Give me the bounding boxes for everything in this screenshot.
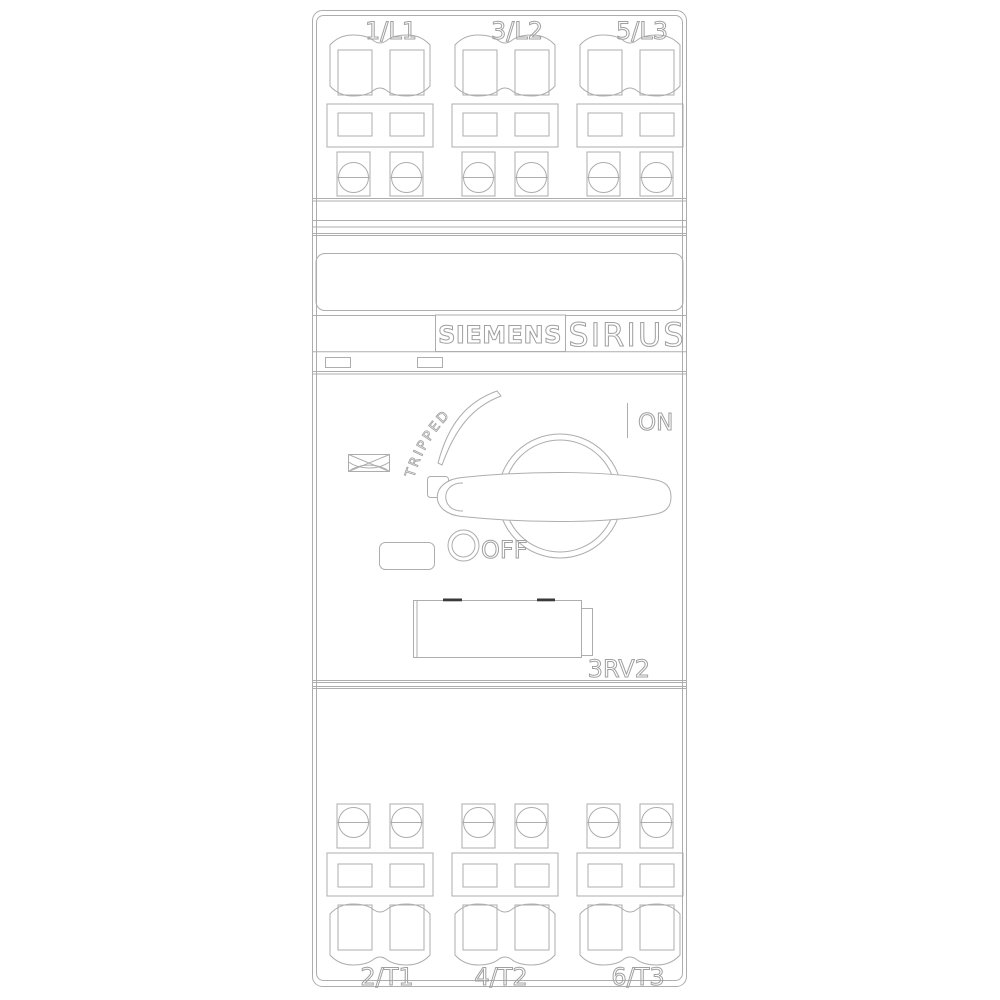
label-plate-mark-right (537, 599, 555, 602)
label-plate-mark-left (443, 599, 462, 602)
terminal-label-1L1: 1/L1 (365, 17, 417, 45)
product-illustration: 1/L1 3/L2 5/L3 SIEMENS SIRIUS TRIPPED ON (0, 0, 1000, 1000)
off-label: OFF (481, 536, 528, 564)
terminal-block-bottom-1 (327, 804, 433, 965)
test-button (380, 543, 435, 570)
terminal-block-top-1 (327, 35, 433, 196)
sirius-logo: SIRIUS (568, 316, 685, 354)
terminal-block-bottom-3 (577, 804, 683, 965)
terminal-block-top-3 (577, 35, 683, 196)
rotary-handle (437, 472, 671, 521)
tripped-indicator: TRIPPED (402, 391, 501, 480)
terminal-block-top-2 (452, 35, 558, 196)
terminal-label-2T1: 2/T1 (360, 963, 413, 991)
current-adjustment-dial (349, 455, 390, 472)
terminal-label-3L2: 3/L2 (491, 17, 543, 45)
off-position-marking: OFF (448, 530, 528, 564)
terminal-label-5L3: 5/L3 (616, 17, 668, 45)
circuit-breaker-drawing: 1/L1 3/L2 5/L3 SIEMENS SIRIUS TRIPPED ON (0, 0, 1000, 1000)
terminal-block-bottom-2 (452, 804, 558, 965)
terminal-label-4T2: 4/T2 (474, 963, 527, 991)
label-plate-side-tab (582, 609, 593, 656)
brand-plate: SIEMENS SIRIUS (326, 315, 686, 368)
marking-slot-right (418, 358, 443, 368)
din-rail-cover-panel (316, 254, 683, 311)
model-label: 3RV2 (588, 655, 650, 683)
on-label: ON (638, 410, 673, 436)
marking-slot-left (326, 358, 351, 368)
tripped-arc (438, 391, 501, 465)
on-position-marking: ON (628, 403, 674, 438)
off-position-ring (448, 530, 479, 561)
terminal-label-6T3: 6/T3 (611, 963, 664, 991)
siemens-logo: SIEMENS (438, 321, 562, 349)
rating-label-plate (414, 599, 593, 658)
